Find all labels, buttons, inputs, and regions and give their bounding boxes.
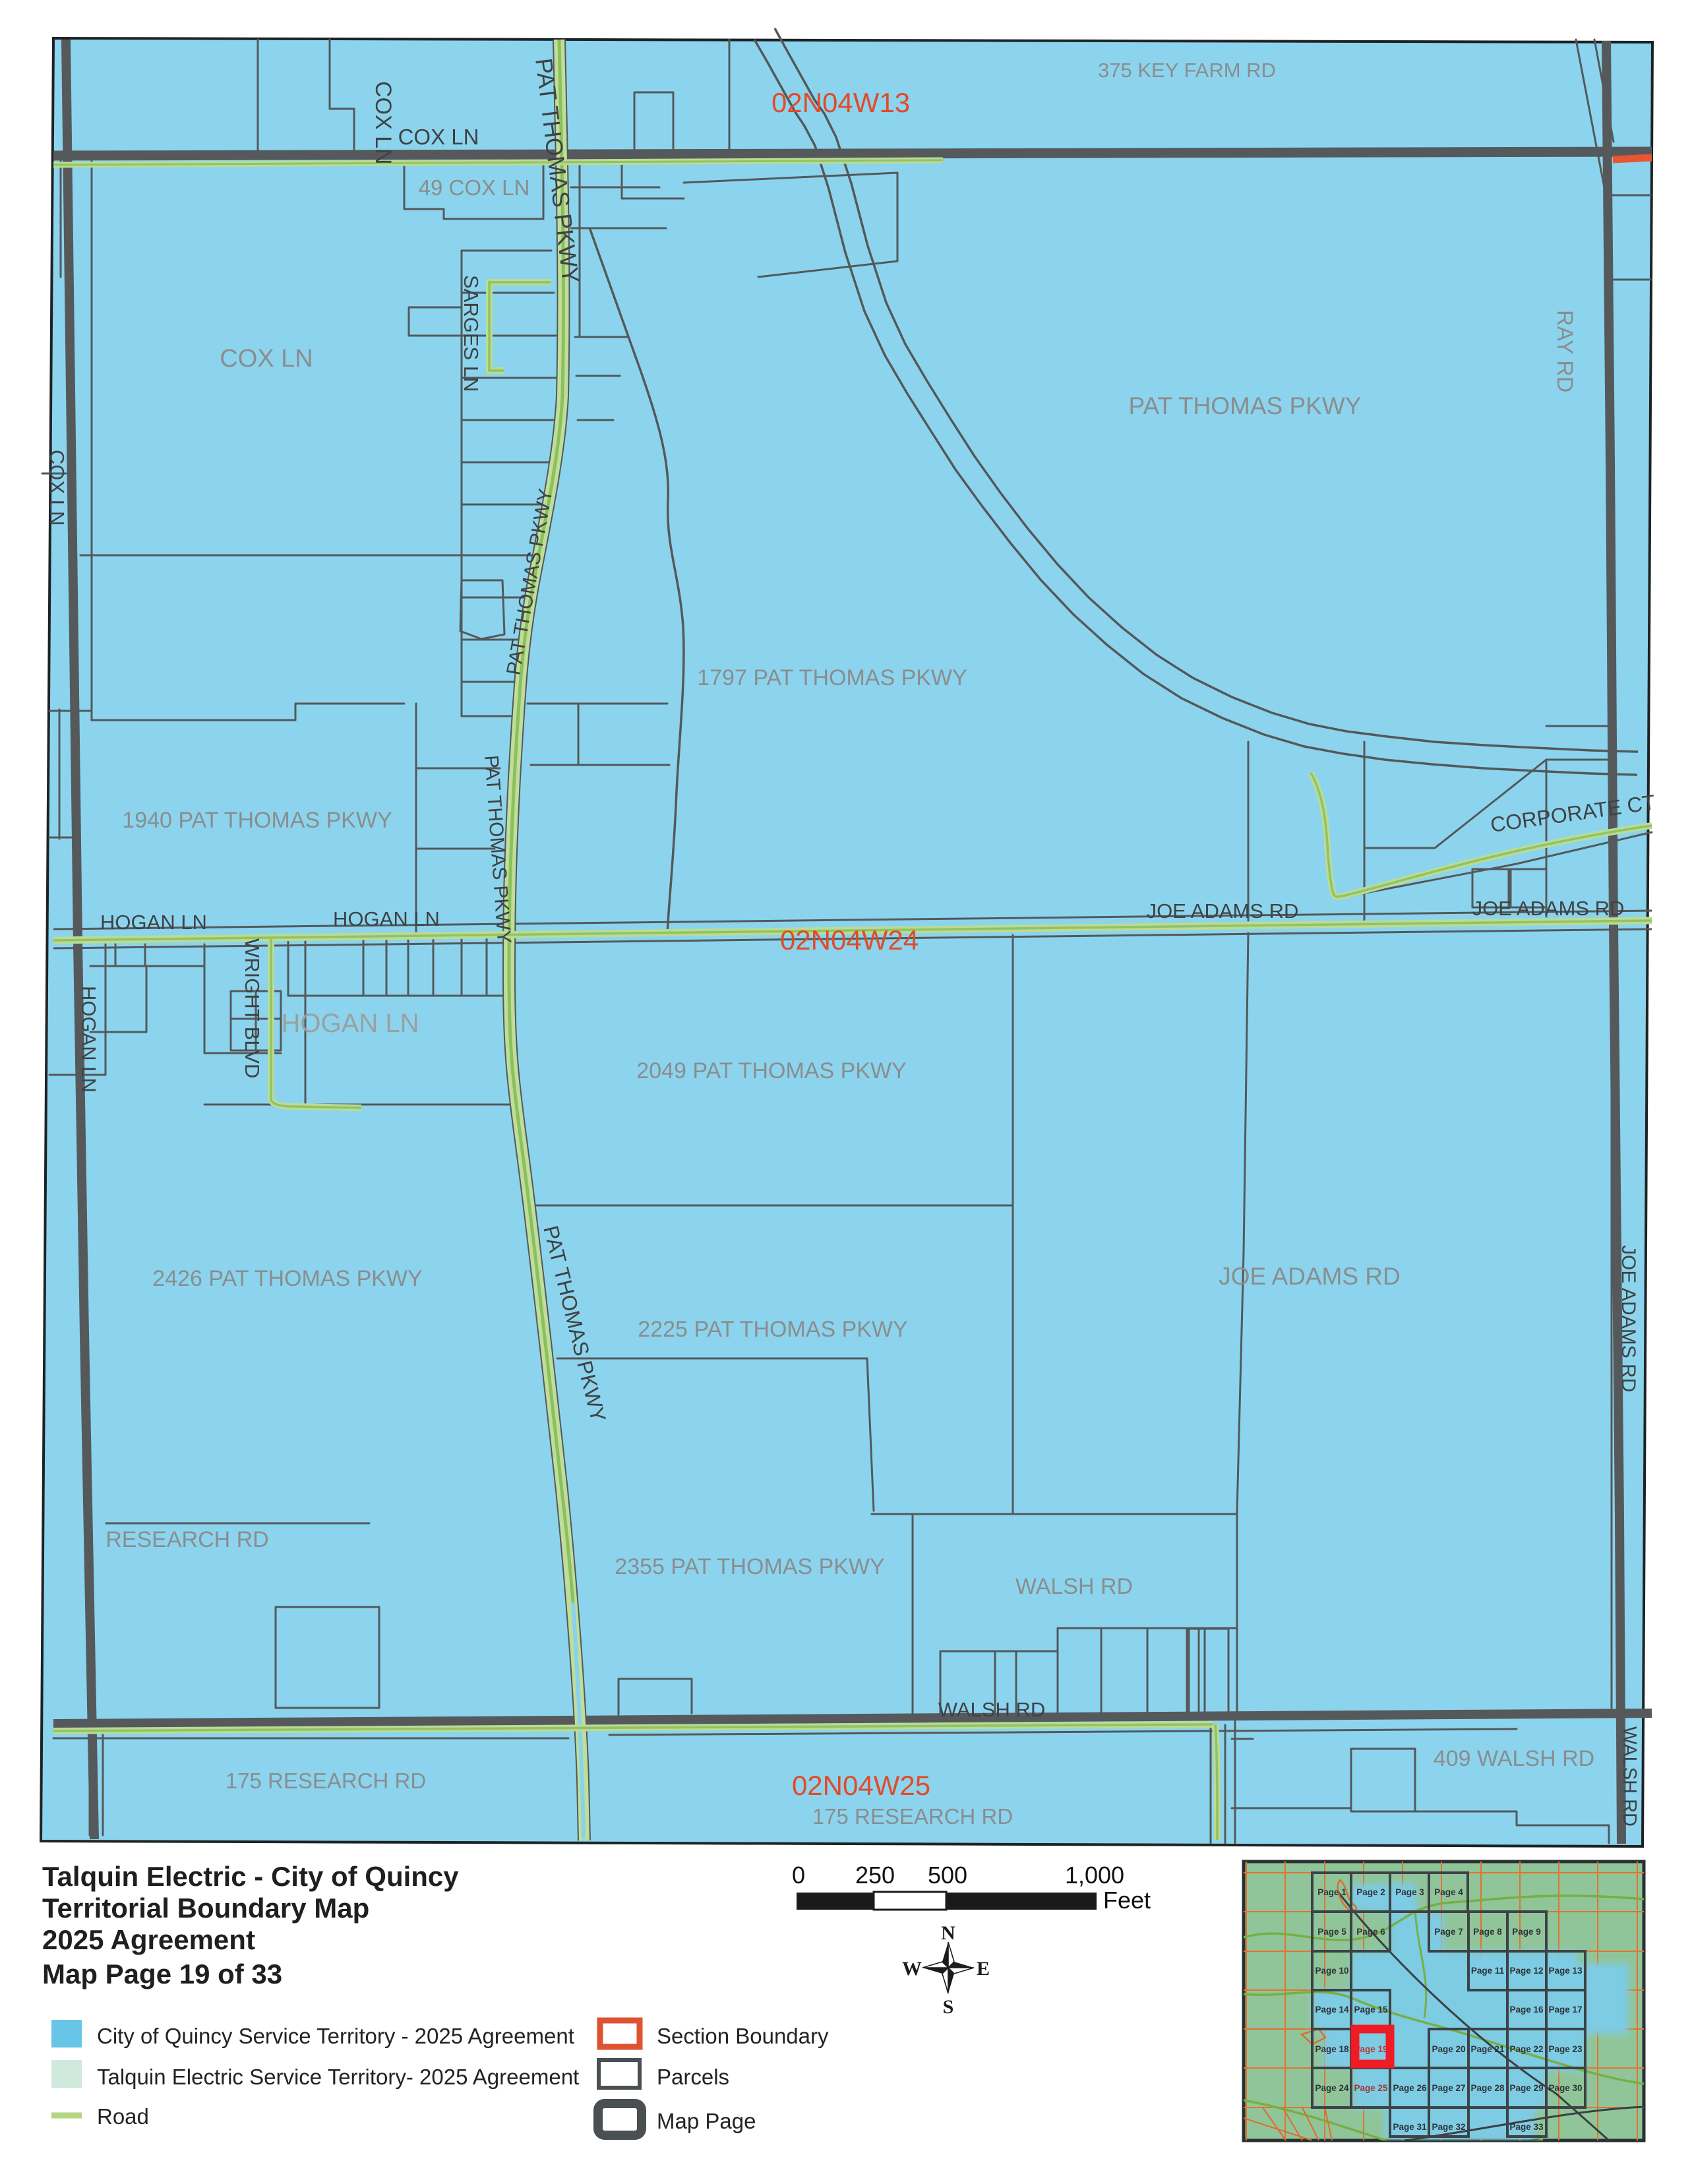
svg-text:City of Quincy Service Territo: City of Quincy Service Territory - 2025 … [97,2024,574,2048]
svg-text:JOE ADAMS RD: JOE ADAMS RD [1147,899,1299,923]
svg-text:HOGAN LN: HOGAN LN [333,907,440,930]
svg-text:1940 PAT THOMAS PKWY: 1940 PAT THOMAS PKWY [122,808,392,833]
svg-text:Page 27: Page 27 [1432,2083,1465,2093]
svg-text:175 RESEARCH RD: 175 RESEARCH RD [226,1769,426,1793]
svg-text:409 WALSH RD: 409 WALSH RD [1434,1746,1594,1771]
svg-text:Page 11: Page 11 [1471,1966,1505,1976]
svg-text:RESEARCH RD: RESEARCH RD [106,1527,268,1552]
svg-text:Road: Road [97,2104,149,2129]
svg-text:JOE ADAMS RD: JOE ADAMS RD [1219,1263,1401,1290]
svg-text:Section Boundary: Section Boundary [657,2024,829,2048]
svg-text:SARGES LN: SARGES LN [460,275,483,392]
svg-text:Page 18: Page 18 [1315,2044,1349,2054]
svg-text:Map Page 19 of 33: Map Page 19 of 33 [42,1958,282,1989]
svg-text:Page 26: Page 26 [1393,2083,1427,2093]
svg-text:WALSH RD: WALSH RD [1015,1574,1133,1599]
svg-text:Page 21: Page 21 [1470,2044,1505,2054]
svg-text:HOGAN LN: HOGAN LN [100,911,207,934]
svg-text:2225 PAT THOMAS PKWY: 2225 PAT THOMAS PKWY [638,1317,907,1342]
svg-text:HOGAN LN: HOGAN LN [77,986,100,1093]
svg-text:Page 29: Page 29 [1509,2083,1543,2093]
svg-text:Page 1: Page 1 [1317,1887,1346,1897]
svg-text:COX LN: COX LN [398,125,479,149]
svg-text:Feet: Feet [1103,1887,1151,1914]
svg-text:1797 PAT THOMAS PKWY: 1797 PAT THOMAS PKWY [697,665,967,690]
svg-text:2025 Agreement: 2025 Agreement [42,1924,255,1955]
svg-text:JOE ADAMS RD: JOE ADAMS RD [1472,897,1625,920]
svg-text:Territorial Boundary Map: Territorial Boundary Map [42,1893,369,1924]
svg-text:02N04W13: 02N04W13 [771,87,910,118]
svg-text:Page 2: Page 2 [1356,1887,1385,1897]
svg-text:Page 32: Page 32 [1432,2122,1465,2132]
svg-text:Page 13: Page 13 [1548,1966,1583,1976]
svg-text:WALSH RD: WALSH RD [938,1698,1045,1721]
svg-text:COX LN: COX LN [220,345,313,373]
svg-text:Page 9: Page 9 [1512,1927,1541,1937]
svg-text:WRIGHT BLVD: WRIGHT BLVD [241,938,264,1078]
svg-text:Page 24: Page 24 [1315,2083,1349,2093]
svg-text:Page 23: Page 23 [1548,2044,1583,2054]
svg-text:Page 14: Page 14 [1315,2005,1349,2015]
svg-text:Page 3: Page 3 [1395,1887,1424,1897]
svg-text:500: 500 [928,1862,967,1889]
svg-text:2426 PAT THOMAS PKWY: 2426 PAT THOMAS PKWY [152,1266,422,1291]
svg-text:Page 6: Page 6 [1356,1927,1385,1937]
svg-text:Page 8: Page 8 [1473,1927,1502,1937]
svg-text:Page 7: Page 7 [1434,1927,1463,1937]
svg-text:02N04W25: 02N04W25 [792,1770,930,1801]
svg-text:Page 30: Page 30 [1548,2083,1582,2093]
svg-text:Page 22: Page 22 [1509,2044,1543,2054]
svg-text:HOGAN LN: HOGAN LN [282,1009,419,1038]
svg-text:250: 250 [855,1862,895,1889]
svg-text:2049 PAT THOMAS PKWY: 2049 PAT THOMAS PKWY [636,1058,906,1083]
svg-text:175 RESEARCH RD: 175 RESEARCH RD [812,1804,1013,1829]
svg-text:PAT THOMAS PKWY: PAT THOMAS PKWY [1129,392,1362,419]
svg-text:S: S [943,1996,954,2018]
svg-text:02N04W24: 02N04W24 [780,925,919,956]
svg-text:2355 PAT THOMAS PKWY: 2355 PAT THOMAS PKWY [615,1554,884,1579]
svg-text:COX LN: COX LN [371,81,396,165]
svg-text:Page 12: Page 12 [1509,1966,1543,1976]
svg-text:49 COX LN: 49 COX LN [419,175,530,200]
svg-text:Page 4: Page 4 [1434,1887,1463,1897]
svg-text:N: N [941,1922,955,1944]
svg-text:1,000: 1,000 [1065,1862,1124,1889]
svg-text:Page 25: Page 25 [1354,2083,1388,2093]
svg-text:Map Page: Map Page [657,2109,756,2133]
svg-text:Page 5: Page 5 [1317,1927,1346,1937]
svg-text:Page 17: Page 17 [1548,2005,1582,2015]
svg-text:Page 31: Page 31 [1393,2122,1427,2132]
svg-text:0: 0 [792,1862,805,1889]
svg-text:Page 15: Page 15 [1354,2005,1388,2015]
svg-text:375 KEY FARM RD: 375 KEY FARM RD [1098,59,1276,82]
svg-text:Parcels: Parcels [657,2065,729,2089]
svg-text:WALSH RD: WALSH RD [1619,1726,1640,1827]
svg-text:Talquin Electric - City of Qui: Talquin Electric - City of Quincy [42,1861,459,1892]
svg-text:COX LN: COX LN [45,450,69,526]
svg-text:E: E [977,1958,990,1980]
svg-text:Page 20: Page 20 [1432,2044,1465,2054]
svg-text:Page 28: Page 28 [1470,2083,1505,2093]
svg-text:Page 33: Page 33 [1509,2122,1544,2132]
svg-text:Page 16: Page 16 [1509,2005,1544,2015]
svg-text:JOE ADAMS RD: JOE ADAMS RD [1617,1245,1639,1392]
svg-text:RAY RD: RAY RD [1552,310,1577,392]
svg-text:Page 10: Page 10 [1315,1966,1348,1976]
svg-text:Talquin Electric Service Terri: Talquin Electric Service Territory- 2025… [97,2065,579,2089]
svg-text:W: W [902,1958,922,1980]
